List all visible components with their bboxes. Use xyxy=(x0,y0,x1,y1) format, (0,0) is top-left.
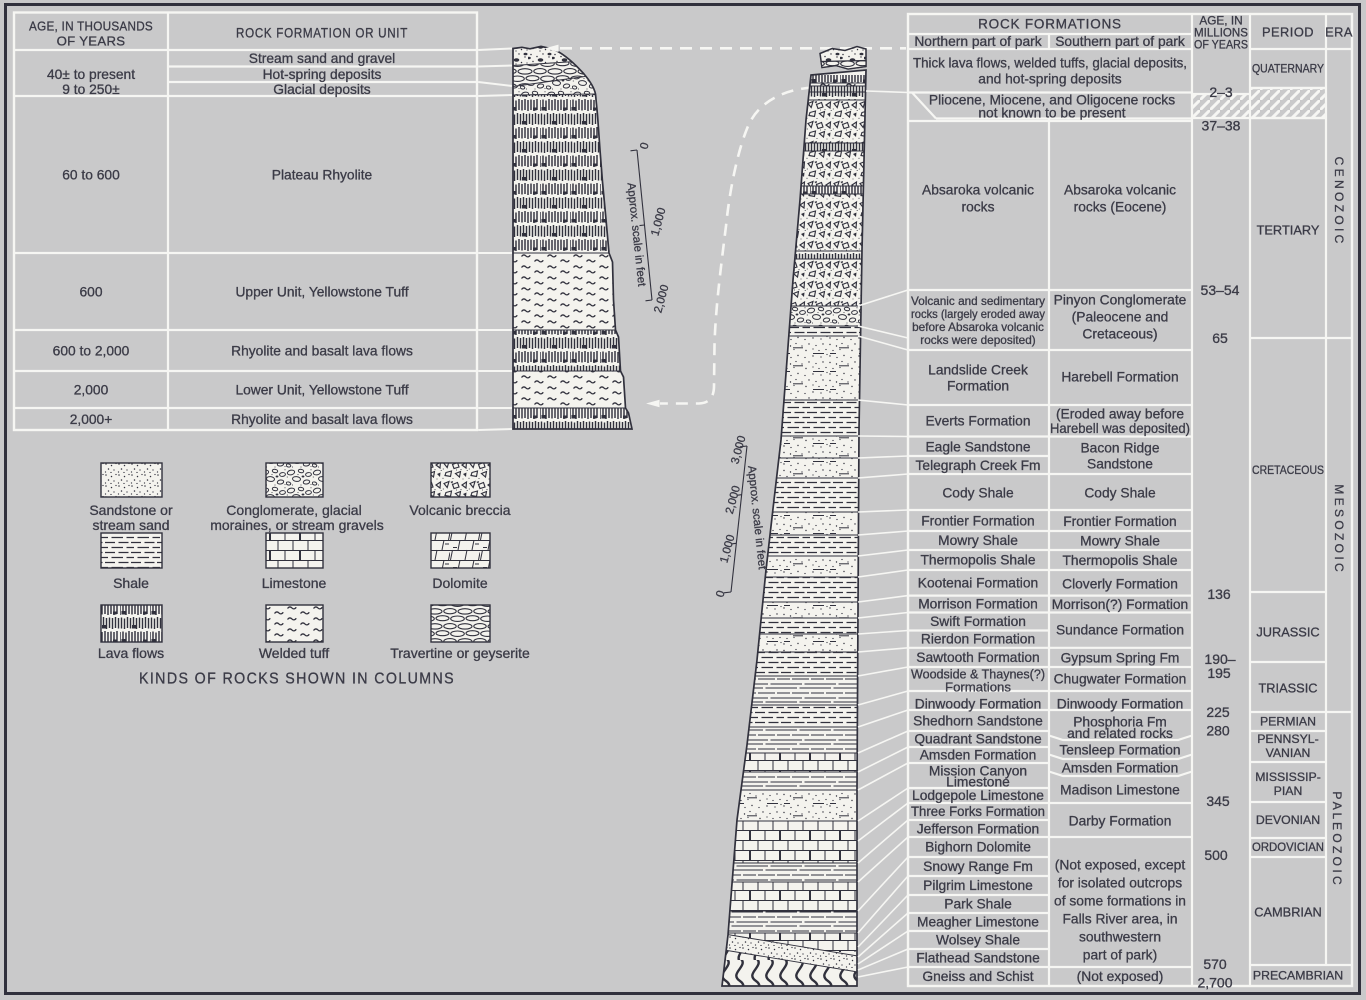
svg-text:Dinwoody Formation: Dinwoody Formation xyxy=(1057,697,1184,712)
svg-text:Limestone: Limestone xyxy=(262,575,327,591)
svg-text:Tensleep Formation: Tensleep Formation xyxy=(1059,743,1180,758)
svg-text:ROCK FORMATIONS: ROCK FORMATIONS xyxy=(978,17,1122,32)
svg-text:OF YEARS: OF YEARS xyxy=(57,34,126,49)
svg-text:Flathead Sandstone: Flathead Sandstone xyxy=(916,951,1040,966)
svg-text:195: 195 xyxy=(1207,665,1231,681)
svg-text:C E N O Z O I C: C E N O Z O I C xyxy=(1332,157,1346,244)
svg-text:TRIASSIC: TRIASSIC xyxy=(1258,681,1317,696)
svg-text:Thermopolis Shale: Thermopolis Shale xyxy=(1062,553,1177,568)
svg-text:Frontier Formation: Frontier Formation xyxy=(1063,514,1176,529)
svg-text:JURASSIC: JURASSIC xyxy=(1256,625,1319,640)
svg-text:(Eroded away before: (Eroded away before xyxy=(1056,407,1184,422)
svg-text:600: 600 xyxy=(79,285,102,300)
svg-text:Amsden Formation: Amsden Formation xyxy=(1062,761,1179,776)
svg-text:Shedhorn Sandstone: Shedhorn Sandstone xyxy=(913,714,1043,729)
svg-text:2–3: 2–3 xyxy=(1209,84,1233,100)
svg-text:PERMIAN: PERMIAN xyxy=(1260,715,1316,729)
svg-text:(Not exposed): (Not exposed) xyxy=(1077,969,1164,984)
svg-text:Kootenai Formation: Kootenai Formation xyxy=(918,576,1038,591)
svg-text:before Absaroka volcanic: before Absaroka volcanic xyxy=(912,320,1044,334)
svg-text:(Not exposed, except: (Not exposed, except xyxy=(1055,858,1186,873)
svg-text:Formations: Formations xyxy=(945,680,1011,695)
svg-text:40± to present: 40± to present xyxy=(47,67,135,82)
svg-text:Cody Shale: Cody Shale xyxy=(942,486,1014,501)
svg-text:37–38: 37–38 xyxy=(1202,118,1241,134)
svg-text:Mowry Shale: Mowry Shale xyxy=(1080,534,1160,549)
svg-text:Sundance Formation: Sundance Formation xyxy=(1056,623,1184,638)
svg-text:CRETACEOUS: CRETACEOUS xyxy=(1252,463,1324,477)
svg-text:rocks (largely eroded away: rocks (largely eroded away xyxy=(911,307,1045,321)
svg-text:9 to 250±: 9 to 250± xyxy=(62,82,120,97)
svg-text:ERA: ERA xyxy=(1325,25,1353,40)
svg-text:2,700: 2,700 xyxy=(1197,975,1232,991)
svg-text:of some formations in: of some formations in xyxy=(1054,894,1186,909)
svg-text:VANIAN: VANIAN xyxy=(1266,746,1311,760)
svg-text:Chugwater Formation: Chugwater Formation xyxy=(1054,672,1187,687)
svg-text:not known to be present: not known to be present xyxy=(978,106,1125,121)
svg-text:Cloverly Formation: Cloverly Formation xyxy=(1062,577,1178,592)
svg-text:Park Shale: Park Shale xyxy=(944,897,1012,912)
svg-text:ORDOVICIAN: ORDOVICIAN xyxy=(1252,840,1324,854)
svg-text:Dolomite: Dolomite xyxy=(432,575,487,591)
svg-text:for isolated outcrops: for isolated outcrops xyxy=(1058,876,1182,891)
svg-text:225: 225 xyxy=(1206,704,1230,720)
svg-text:PERIOD: PERIOD xyxy=(1262,25,1314,40)
svg-text:Southern part of park: Southern part of park xyxy=(1055,34,1185,49)
svg-text:Pilgrim Limestone: Pilgrim Limestone xyxy=(923,878,1033,893)
svg-text:Telegraph Creek Fm: Telegraph Creek Fm xyxy=(916,458,1041,473)
svg-text:Absaroka volcanic: Absaroka volcanic xyxy=(1064,183,1176,198)
svg-text:Bighorn Dolomite: Bighorn Dolomite xyxy=(925,840,1031,855)
svg-text:Absaroka volcanic: Absaroka volcanic xyxy=(922,183,1034,198)
svg-text:Conglomerate, glacial: Conglomerate, glacial xyxy=(226,502,361,518)
svg-text:Thermopolis Shale: Thermopolis Shale xyxy=(920,553,1035,568)
svg-text:Lower Unit, Yellowstone Tuff: Lower Unit, Yellowstone Tuff xyxy=(235,383,408,398)
svg-text:Travertine or geyserite: Travertine or geyserite xyxy=(390,645,530,661)
svg-text:Sandstone or: Sandstone or xyxy=(89,502,173,518)
svg-text:Morrison Formation: Morrison Formation xyxy=(918,597,1038,612)
svg-text:Madison Limestone: Madison Limestone xyxy=(1060,783,1180,798)
svg-text:QUATERNARY: QUATERNARY xyxy=(1252,62,1324,76)
svg-text:moraines, or stream gravels: moraines, or stream gravels xyxy=(210,517,384,533)
svg-text:Lodgepole Limestone: Lodgepole Limestone xyxy=(912,788,1044,803)
svg-text:ROCK FORMATION OR UNIT: ROCK FORMATION OR UNIT xyxy=(236,26,408,41)
svg-text:Upper Unit, Yellowstone Tuff: Upper Unit, Yellowstone Tuff xyxy=(235,285,408,300)
svg-text:Rhyolite and basalt lava flows: Rhyolite and basalt lava flows xyxy=(231,412,413,427)
svg-text:Snowy Range Fm: Snowy Range Fm xyxy=(923,859,1033,874)
svg-text:Volcanic and sedimentary: Volcanic and sedimentary xyxy=(911,294,1045,308)
svg-text:AGE, IN THOUSANDS: AGE, IN THOUSANDS xyxy=(29,19,153,34)
svg-text:500: 500 xyxy=(1204,847,1228,863)
svg-text:Darby Formation: Darby Formation xyxy=(1069,814,1172,829)
svg-text:Hot-spring deposits: Hot-spring deposits xyxy=(263,67,382,82)
svg-text:TERTIARY: TERTIARY xyxy=(1257,223,1320,238)
svg-text:Swift Formation: Swift Formation xyxy=(930,614,1026,629)
svg-text:Lava flows: Lava flows xyxy=(98,645,164,661)
svg-text:OF YEARS: OF YEARS xyxy=(1194,38,1248,52)
svg-text:southwestern: southwestern xyxy=(1079,930,1161,945)
svg-text:rocks (Eocene): rocks (Eocene) xyxy=(1074,200,1167,215)
svg-text:Glacial deposits: Glacial deposits xyxy=(273,82,370,97)
svg-text:136: 136 xyxy=(1207,586,1231,602)
svg-text:PIAN: PIAN xyxy=(1274,784,1303,798)
svg-text:Plateau Rhyolite: Plateau Rhyolite xyxy=(272,168,373,183)
svg-text:Morrison(?) Formation: Morrison(?) Formation xyxy=(1052,597,1188,612)
svg-text:570: 570 xyxy=(1203,956,1227,972)
svg-text:Cody Shale: Cody Shale xyxy=(1084,486,1156,501)
svg-text:Welded tuff: Welded tuff xyxy=(259,645,329,661)
svg-text:Falls River area, in: Falls River area, in xyxy=(1062,912,1177,927)
svg-text:P A L E O Z O I C: P A L E O Z O I C xyxy=(1330,791,1344,885)
svg-text:Sandstone: Sandstone xyxy=(1087,457,1153,472)
svg-text:53–54: 53–54 xyxy=(1201,282,1240,298)
svg-text:Frontier Formation: Frontier Formation xyxy=(921,514,1034,529)
svg-text:Rierdon Formation: Rierdon Formation xyxy=(921,632,1035,647)
svg-text:Landslide Creek: Landslide Creek xyxy=(928,363,1028,378)
svg-text:280: 280 xyxy=(1206,723,1230,739)
svg-text:Stream sand and gravel: Stream sand and gravel xyxy=(249,51,395,66)
svg-text:rocks: rocks xyxy=(962,200,995,215)
svg-text:Harebell Formation: Harebell Formation xyxy=(1061,370,1178,385)
svg-text:Thick lava flows, welded tuffs: Thick lava flows, welded tuffs, glacial … xyxy=(913,56,1187,71)
svg-text:PRECAMBRIAN: PRECAMBRIAN xyxy=(1253,969,1343,983)
svg-text:Eagle Sandstone: Eagle Sandstone xyxy=(925,440,1030,455)
svg-text:2,000: 2,000 xyxy=(74,383,109,398)
svg-text:PENNSYL-: PENNSYL- xyxy=(1257,732,1319,746)
svg-text:DEVONIAN: DEVONIAN xyxy=(1256,813,1320,827)
svg-text:Pinyon Conglomerate: Pinyon Conglomerate xyxy=(1054,293,1187,308)
svg-text:Northern part of park: Northern part of park xyxy=(914,34,1041,49)
svg-text:Rhyolite and basalt lava flows: Rhyolite and basalt lava flows xyxy=(231,344,413,359)
svg-text:(Paleocene and: (Paleocene and xyxy=(1072,310,1169,325)
svg-text:and related rocks: and related rocks xyxy=(1067,726,1173,741)
svg-text:and hot-spring deposits: and hot-spring deposits xyxy=(978,72,1122,87)
svg-text:2,000+: 2,000+ xyxy=(70,412,113,427)
svg-text:KINDS OF ROCKS SHOWN IN C: KINDS OF ROCKS SHOWN IN COLUMNS xyxy=(139,671,455,688)
svg-text:65: 65 xyxy=(1212,330,1228,346)
svg-text:M E S O Z O I C: M E S O Z O I C xyxy=(1332,484,1346,572)
svg-text:Harebell was deposited): Harebell was deposited) xyxy=(1050,421,1190,436)
svg-text:Amsden Formation: Amsden Formation xyxy=(920,748,1037,763)
svg-text:Three Forks Formation: Three Forks Formation xyxy=(911,804,1045,819)
svg-text:Mowry Shale: Mowry Shale xyxy=(938,533,1018,548)
svg-text:Cretaceous): Cretaceous) xyxy=(1082,327,1157,342)
svg-text:60 to 600: 60 to 600 xyxy=(62,168,120,183)
svg-text:CAMBRIAN: CAMBRIAN xyxy=(1254,905,1322,920)
svg-text:part of park): part of park) xyxy=(1083,948,1157,963)
svg-text:Dinwoody Formation: Dinwoody Formation xyxy=(915,697,1042,712)
svg-text:Gneiss and Schist: Gneiss and Schist xyxy=(922,969,1033,984)
svg-text:Quadrant Sandstone: Quadrant Sandstone xyxy=(914,732,1042,747)
svg-text:Formation: Formation xyxy=(947,379,1009,394)
svg-text:rocks were deposited): rocks were deposited) xyxy=(920,333,1035,347)
svg-text:Shale: Shale xyxy=(113,575,149,591)
svg-text:MISSISSIP-: MISSISSIP- xyxy=(1255,770,1321,784)
svg-text:Sawtooth Formation: Sawtooth Formation xyxy=(916,650,1039,665)
svg-text:Meagher Limestone: Meagher Limestone xyxy=(917,915,1039,930)
svg-text:Wolsey Shale: Wolsey Shale xyxy=(936,933,1020,948)
svg-text:Jefferson Formation: Jefferson Formation xyxy=(917,822,1039,837)
svg-text:600 to 2,000: 600 to 2,000 xyxy=(53,344,130,359)
svg-text:345: 345 xyxy=(1206,793,1230,809)
svg-text:Gypsum Spring Fm: Gypsum Spring Fm xyxy=(1061,651,1180,666)
svg-text:Everts Formation: Everts Formation xyxy=(925,414,1030,429)
svg-text:stream sand: stream sand xyxy=(92,517,169,533)
svg-text:Bacon Ridge: Bacon Ridge xyxy=(1080,441,1159,456)
svg-text:Volcanic breccia: Volcanic breccia xyxy=(409,502,510,518)
